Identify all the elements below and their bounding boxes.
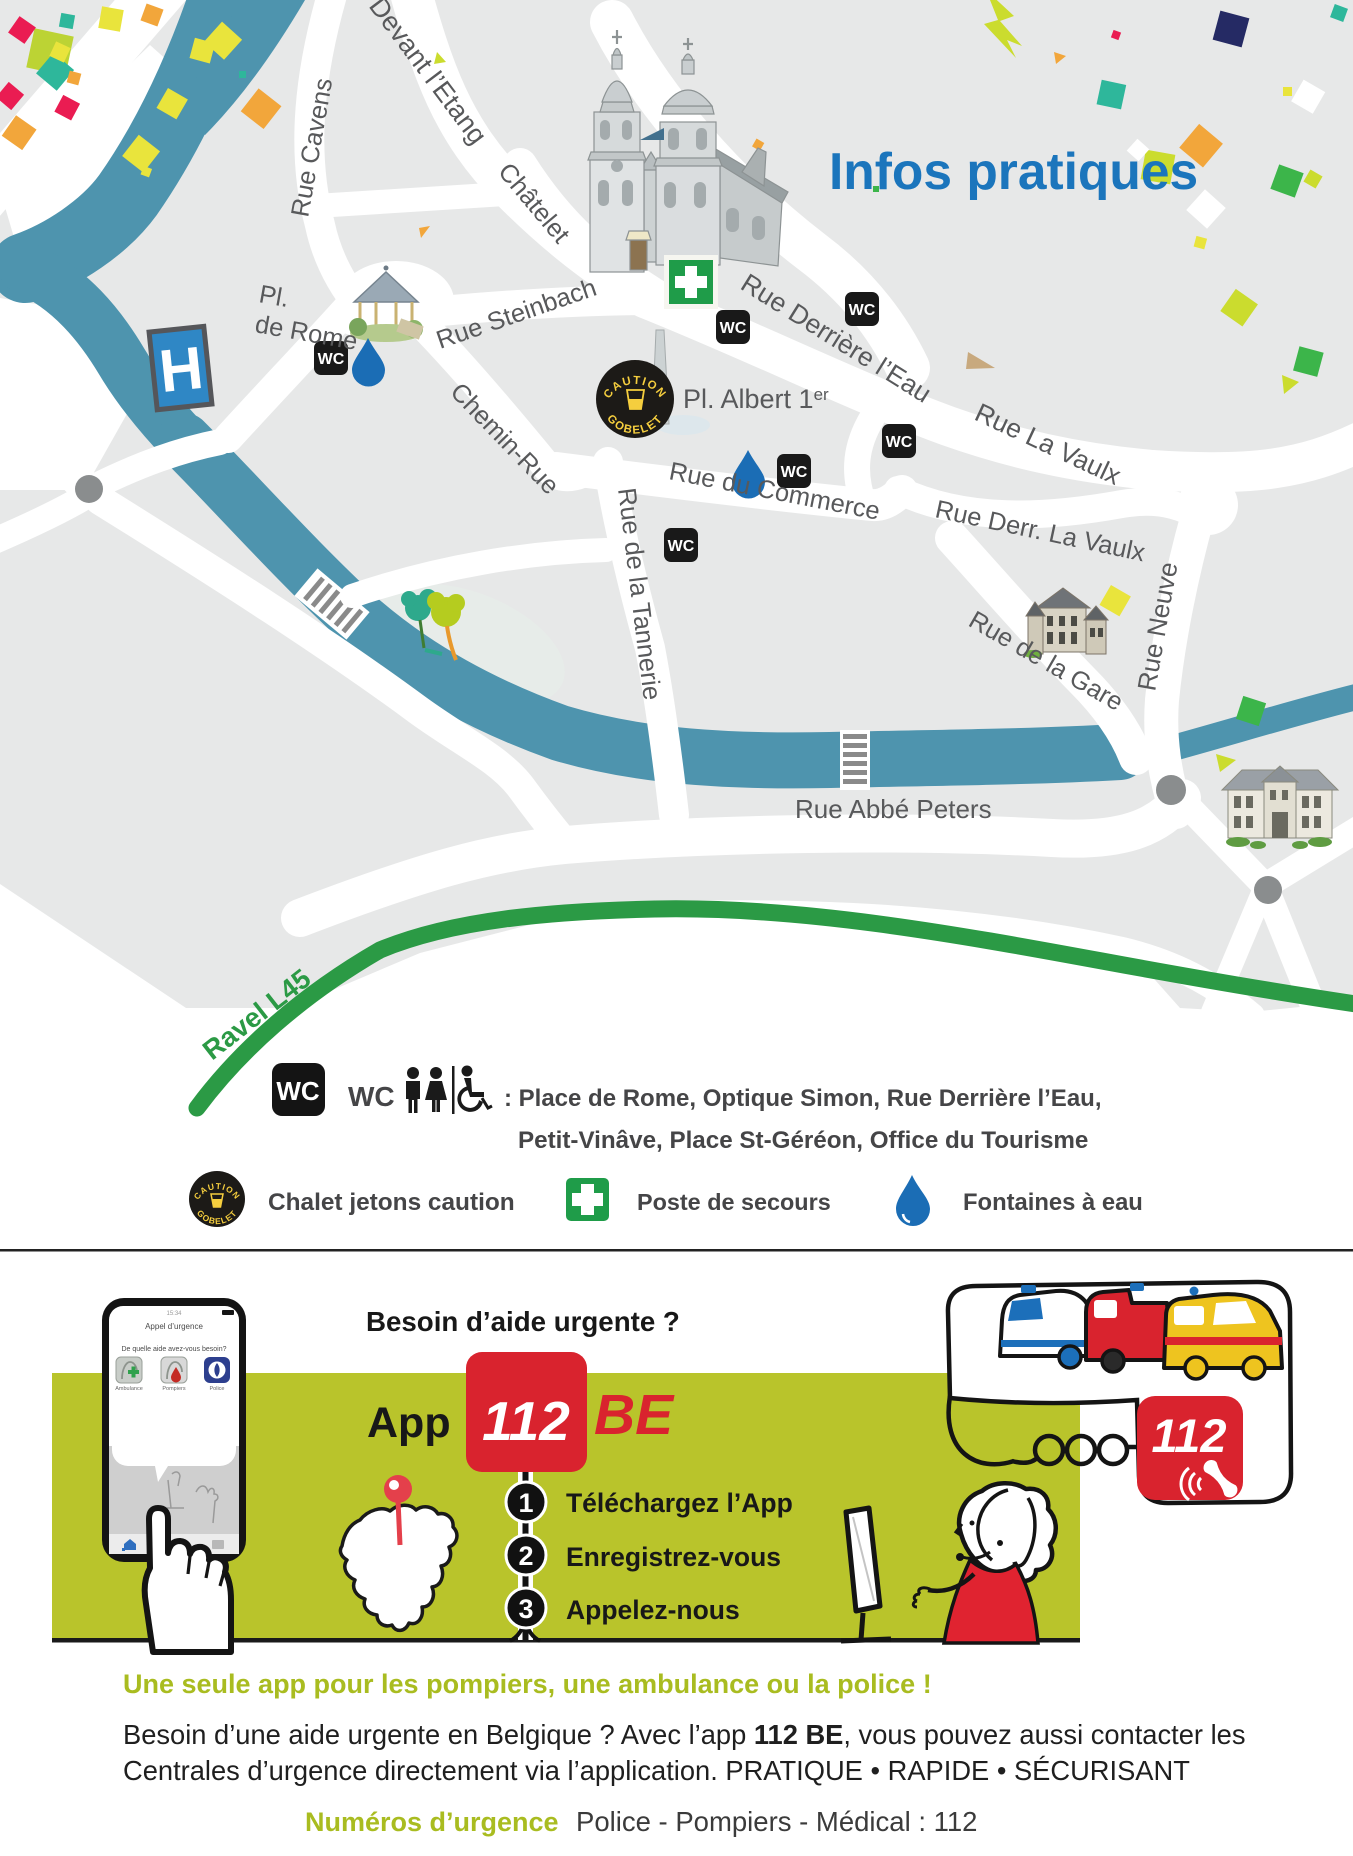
svg-text:Infos pratiques: Infos pratiques xyxy=(829,142,1198,200)
svg-text:Une seule app pour les pompier: Une seule app pour les pompiers, une amb… xyxy=(123,1669,932,1699)
svg-text:Centrales d’urgence directemen: Centrales d’urgence directement via l’ap… xyxy=(123,1755,1190,1786)
svg-text:Police - Pompiers - Médical :: Police - Pompiers - Médical : 112 xyxy=(576,1806,977,1837)
svg-text:: Place de Rome, Optique Simon: : Place de Rome, Optique Simon, Rue Derr… xyxy=(504,1085,1102,1112)
svg-text:Poste de secours: Poste de secours xyxy=(637,1189,831,1215)
svg-text:Rue Abbé Peters: Rue Abbé Peters xyxy=(795,794,992,824)
svg-text:WC: WC xyxy=(668,538,695,555)
svg-text:WC: WC xyxy=(886,434,913,451)
svg-text:WC: WC xyxy=(276,1076,320,1106)
svg-text:Besoin d’une aide urgente en B: Besoin d’une aide urgente en Belgique ? … xyxy=(123,1719,1245,1750)
svg-text:Téléchargez l’App: Téléchargez l’App xyxy=(566,1488,793,1518)
svg-text:WC: WC xyxy=(318,351,345,368)
svg-text:Besoin d’aide urgente ?: Besoin d’aide urgente ? xyxy=(366,1306,680,1337)
svg-text:112: 112 xyxy=(1152,1409,1227,1462)
svg-text:2: 2 xyxy=(518,1541,533,1571)
svg-text:WC: WC xyxy=(849,302,876,319)
svg-text:WC: WC xyxy=(720,320,747,337)
svg-text:App: App xyxy=(367,1399,451,1447)
svg-text:BE: BE xyxy=(594,1383,675,1447)
svg-text:H: H xyxy=(156,334,206,405)
svg-text:Appel d’urgence: Appel d’urgence xyxy=(145,1322,203,1331)
svg-text:De quelle aide avez-vous besoi: De quelle aide avez-vous besoin? xyxy=(121,1346,226,1353)
svg-text:Pompiers: Pompiers xyxy=(162,1386,185,1392)
svg-text:Ambulance: Ambulance xyxy=(115,1386,143,1392)
svg-text:Enregistrez-vous: Enregistrez-vous xyxy=(566,1542,781,1572)
svg-text:Petit-Vinâve, Place St-Géréon,: Petit-Vinâve, Place St-Géréon, Office du… xyxy=(518,1127,1088,1154)
svg-text:1: 1 xyxy=(518,1488,533,1518)
svg-text:15:34: 15:34 xyxy=(166,1311,182,1317)
svg-text:Chalet jetons caution: Chalet jetons caution xyxy=(268,1189,515,1216)
svg-text:Pl. Albert 1er: Pl. Albert 1er xyxy=(683,384,829,414)
svg-text:112: 112 xyxy=(482,1390,570,1452)
svg-text:Pl.: Pl. xyxy=(257,280,291,313)
svg-text:Police: Police xyxy=(210,1386,225,1392)
svg-text:WC: WC xyxy=(348,1081,395,1112)
svg-text:3: 3 xyxy=(518,1594,533,1624)
svg-text:Appelez-nous: Appelez-nous xyxy=(566,1595,740,1625)
svg-text:Numéros d’urgence: Numéros d’urgence xyxy=(305,1807,559,1837)
svg-text:Fontaines à eau: Fontaines à eau xyxy=(963,1189,1143,1216)
